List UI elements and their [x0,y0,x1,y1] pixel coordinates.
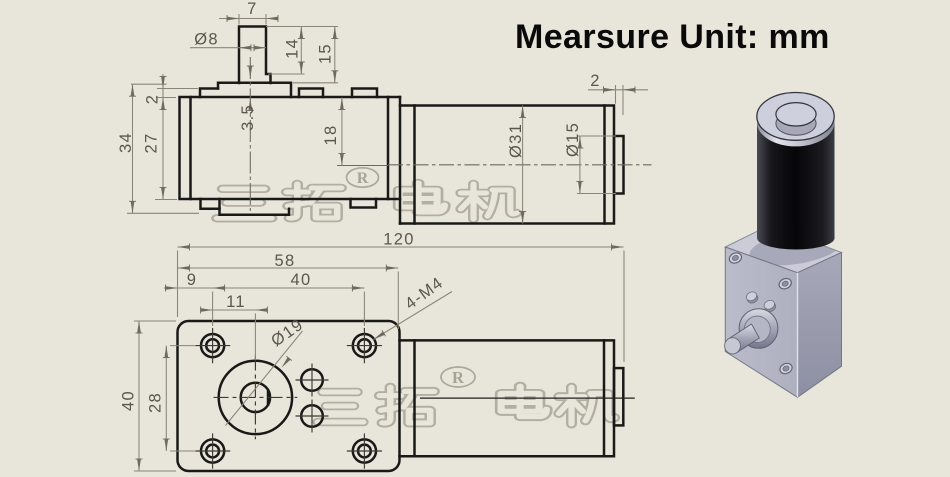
svg-text:58: 58 [275,252,296,270]
svg-text:7: 7 [247,0,257,18]
svg-text:Mearsure Unit: mm: Mearsure Unit: mm [515,18,830,56]
svg-text:40: 40 [291,271,312,289]
svg-text:R: R [452,368,465,387]
svg-text:18: 18 [322,125,340,146]
svg-text:3.5: 3.5 [239,104,257,131]
svg-text:Ø15: Ø15 [564,122,582,157]
svg-text:R: R [357,170,369,187]
svg-text:4-M4: 4-M4 [402,274,447,314]
svg-text:14: 14 [284,38,302,59]
svg-text:Ø8: Ø8 [194,31,219,49]
svg-text:120: 120 [383,231,414,249]
svg-text:28: 28 [147,392,165,413]
svg-text:9: 9 [187,271,197,289]
svg-text:27: 27 [143,133,161,154]
svg-text:2: 2 [144,94,162,104]
svg-text:40: 40 [120,390,138,411]
svg-text:34: 34 [117,132,135,153]
svg-text:15: 15 [317,43,335,64]
svg-text:11: 11 [226,293,246,311]
svg-text:2: 2 [590,72,600,90]
svg-text:Ø31: Ø31 [507,123,525,158]
